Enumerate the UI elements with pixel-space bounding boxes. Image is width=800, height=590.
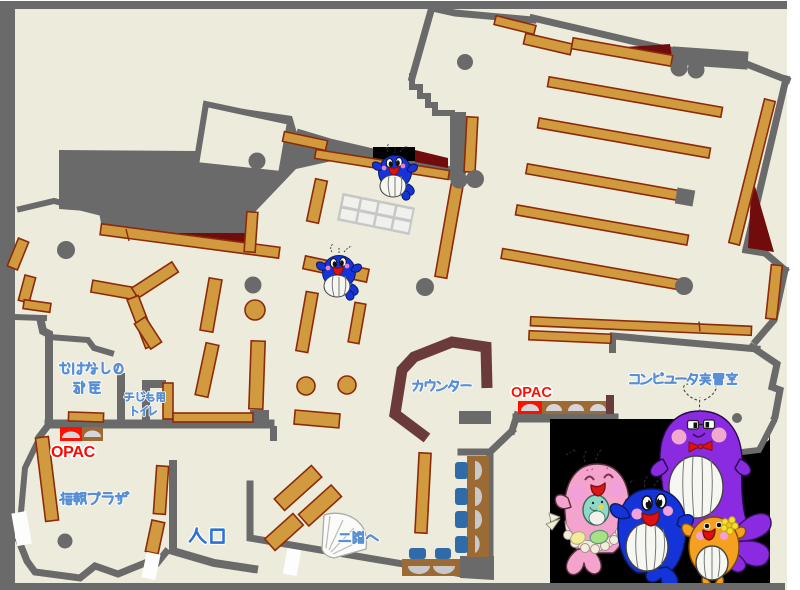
svg-text:OPAC: OPAC [51, 444, 96, 461]
svg-text:OPAC: OPAC [511, 385, 552, 401]
